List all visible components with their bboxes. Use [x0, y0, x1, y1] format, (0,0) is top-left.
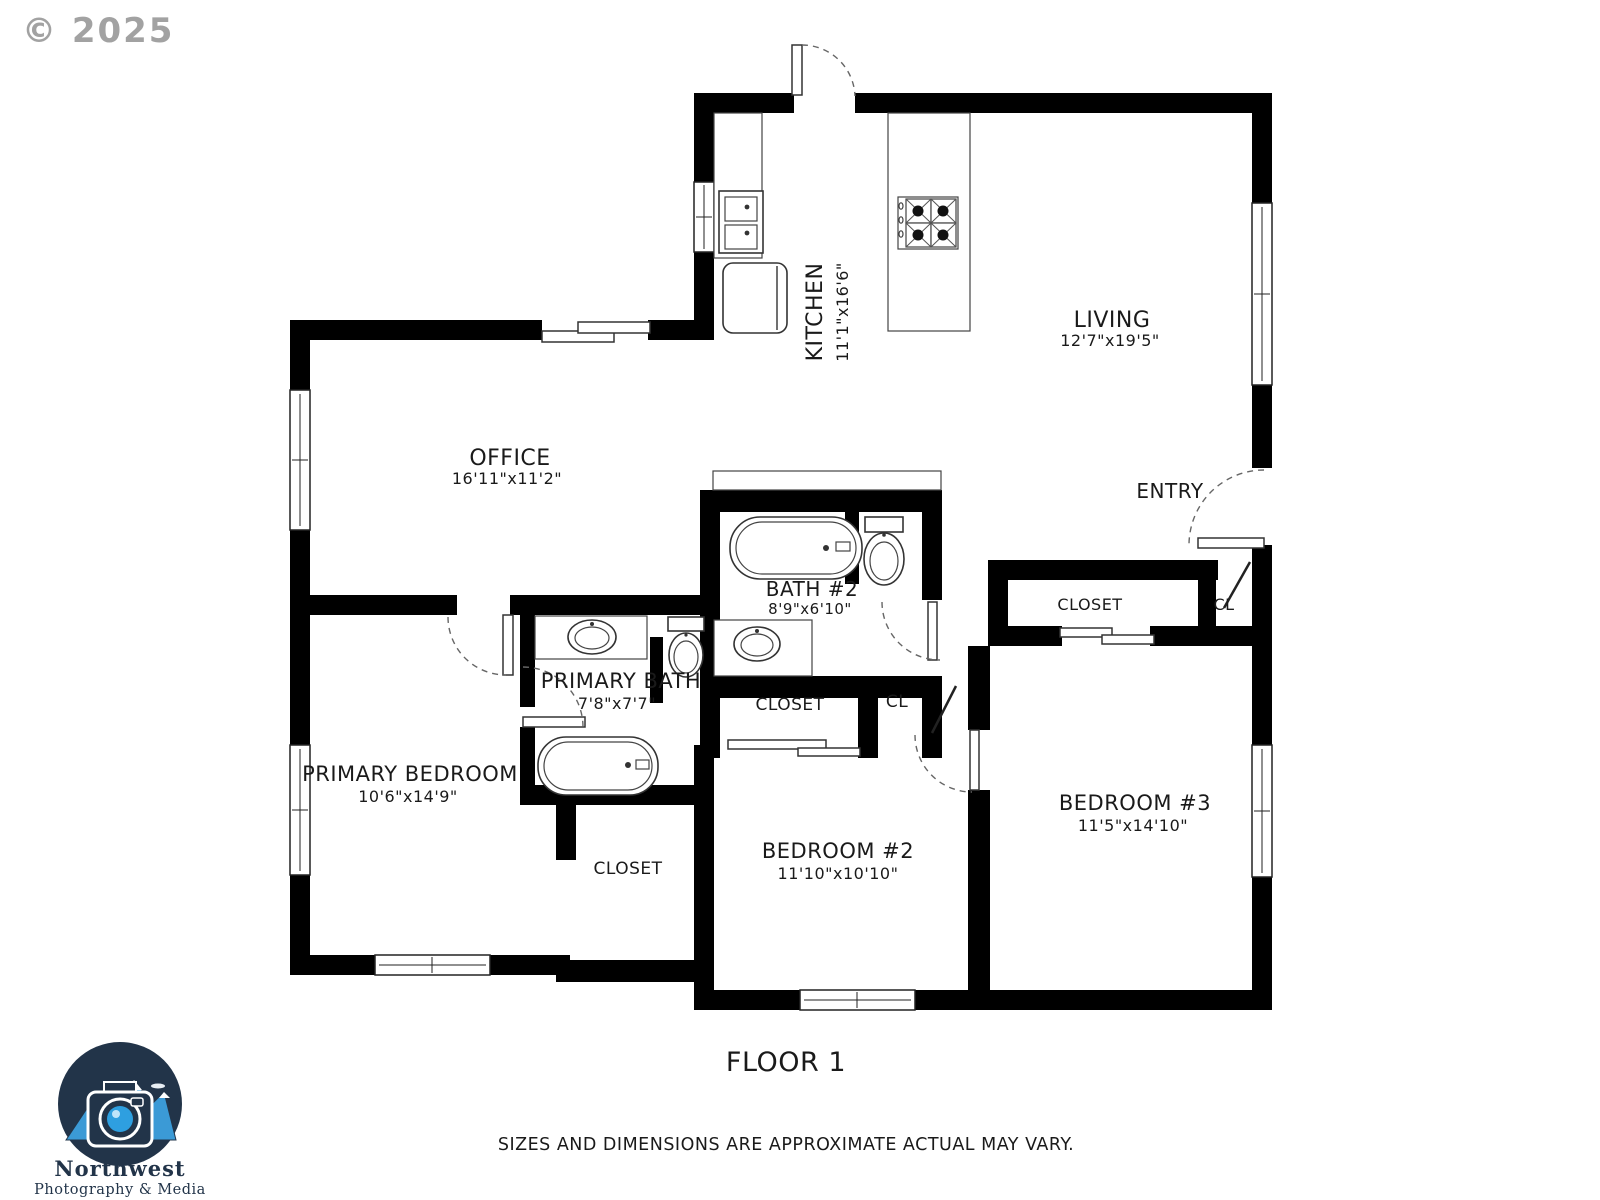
- window-bedroom2-bottom: [800, 990, 915, 1010]
- kitchen-sink-icon: [719, 191, 763, 253]
- room-dims-bedroom2: 11'10"x10'10": [778, 864, 899, 883]
- bath2-hall-counter: [713, 471, 941, 490]
- room-dims-primary-bath: 7'8"x7'7": [578, 694, 656, 713]
- logo-tagline: Photography & Media: [34, 1182, 206, 1198]
- room-label-entry: ENTRY: [1136, 479, 1203, 503]
- room-label-closet-bedroom3: CLOSET: [1057, 595, 1122, 614]
- logo-icon: [58, 1042, 182, 1166]
- bathtub-icon: [730, 517, 862, 579]
- floor-title: FLOOR 1: [726, 1047, 846, 1078]
- room-label-living: LIVING: [1074, 308, 1151, 333]
- room-label-cl-hall: CL: [886, 692, 908, 712]
- stove-icon: [898, 197, 958, 249]
- room-dims-kitchen: 11'1"x16'6": [833, 262, 852, 362]
- office-sliding-door: [542, 322, 650, 342]
- room-label-cl-entry: CL: [1213, 595, 1234, 614]
- room-label-kitchen: KITCHEN: [803, 263, 828, 362]
- room-label-primary-bath: PRIMARY BATH: [541, 669, 701, 693]
- window-office-left: [290, 390, 310, 530]
- photography-logo: Northwest Photography & Media: [34, 1042, 206, 1198]
- toilet-icon: [668, 617, 704, 677]
- bathtub-icon: [538, 737, 658, 795]
- floor-plan-page: KITCHEN 11'1"x16'6" LIVING 12'7"x19'5" O…: [0, 0, 1600, 1200]
- room-dims-primary-bedroom: 10'6"x14'9": [358, 787, 458, 806]
- window-living-right: [1252, 203, 1272, 385]
- room-label-bath2: BATH #2: [766, 577, 858, 601]
- window-kitchen-left: [694, 182, 714, 252]
- sink-icon: [535, 616, 647, 659]
- window-primary-bottom: [375, 955, 490, 975]
- logo-name: Northwest: [54, 1156, 185, 1181]
- fridge-icon: [723, 263, 787, 333]
- room-dims-office: 16'11"x11'2": [452, 469, 562, 488]
- bath2-door: [882, 602, 940, 660]
- window-bedroom3-right: [1252, 745, 1272, 877]
- room-dims-bedroom3: 11'5"x14'10": [1078, 816, 1188, 835]
- room-dims-living: 12'7"x19'5": [1060, 331, 1160, 350]
- primary-bedroom-door: [448, 615, 513, 675]
- room-label-primary-bedroom: PRIMARY BEDROOM: [302, 762, 518, 786]
- kitchen-exterior-door: [792, 45, 855, 96]
- room-dims-bath2: 8'9"x6'10": [768, 600, 852, 618]
- room-label-bedroom3: BEDROOM #3: [1059, 791, 1211, 815]
- room-label-closet-bedroom2: CLOSET: [755, 695, 824, 715]
- room-label-closet-primary: CLOSET: [593, 859, 662, 879]
- sink-icon: [714, 620, 812, 676]
- floor-plan: KITCHEN 11'1"x16'6" LIVING 12'7"x19'5" O…: [0, 0, 1600, 1200]
- copyright-text: © 2025: [22, 11, 174, 51]
- disclaimer-text: SIZES AND DIMENSIONS ARE APPROXIMATE ACT…: [498, 1135, 1074, 1155]
- room-label-office: OFFICE: [469, 446, 550, 471]
- bedroom3-closet-sliding-door: [1060, 628, 1154, 644]
- bedroom2-closet-sliding-door: [728, 740, 860, 756]
- room-label-bedroom2: BEDROOM #2: [762, 839, 914, 863]
- toilet-icon: [864, 517, 904, 585]
